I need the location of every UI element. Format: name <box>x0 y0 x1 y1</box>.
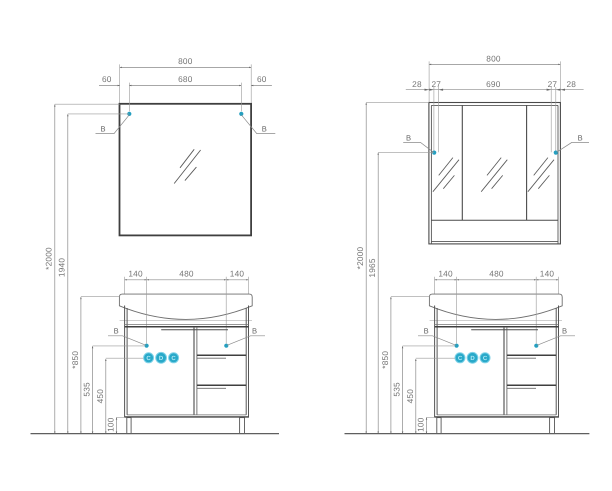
svg-text:450: 450 <box>95 389 105 404</box>
svg-text:535: 535 <box>82 382 92 397</box>
svg-text:*850: *850 <box>380 351 390 369</box>
svg-text:C: C <box>146 355 151 362</box>
svg-text:B: B <box>252 327 257 336</box>
svg-text:100: 100 <box>106 417 116 432</box>
svg-text:B: B <box>578 133 583 142</box>
svg-text:680: 680 <box>178 74 193 84</box>
svg-text:140: 140 <box>128 269 143 279</box>
svg-text:60: 60 <box>102 74 112 84</box>
svg-text:690: 690 <box>486 79 501 89</box>
svg-text:C: C <box>171 355 176 362</box>
svg-text:D: D <box>159 355 164 362</box>
svg-text:140: 140 <box>438 269 453 279</box>
svg-text:C: C <box>483 355 488 362</box>
svg-text:B: B <box>424 327 429 336</box>
svg-text:*2000: *2000 <box>355 246 365 269</box>
svg-text:100: 100 <box>416 417 426 432</box>
svg-text:*850: *850 <box>70 351 80 369</box>
svg-text:140: 140 <box>540 269 555 279</box>
svg-text:B: B <box>562 327 567 336</box>
svg-text:*2000: *2000 <box>43 247 53 270</box>
svg-text:800: 800 <box>486 54 501 64</box>
svg-text:C: C <box>458 355 463 362</box>
svg-text:450: 450 <box>405 389 415 404</box>
svg-text:1940: 1940 <box>56 258 66 277</box>
svg-text:B: B <box>100 125 105 134</box>
svg-text:B: B <box>114 327 119 336</box>
svg-text:535: 535 <box>392 382 402 397</box>
svg-text:480: 480 <box>489 269 504 279</box>
svg-text:28: 28 <box>566 79 576 89</box>
svg-text:140: 140 <box>230 269 245 279</box>
svg-text:800: 800 <box>178 56 193 66</box>
svg-text:B: B <box>262 125 267 134</box>
svg-text:480: 480 <box>179 269 194 279</box>
svg-text:1965: 1965 <box>367 258 377 277</box>
svg-text:B: B <box>406 133 411 142</box>
svg-text:28: 28 <box>412 79 422 89</box>
svg-text:27: 27 <box>431 79 441 89</box>
svg-text:60: 60 <box>257 74 267 84</box>
svg-text:D: D <box>470 355 475 362</box>
